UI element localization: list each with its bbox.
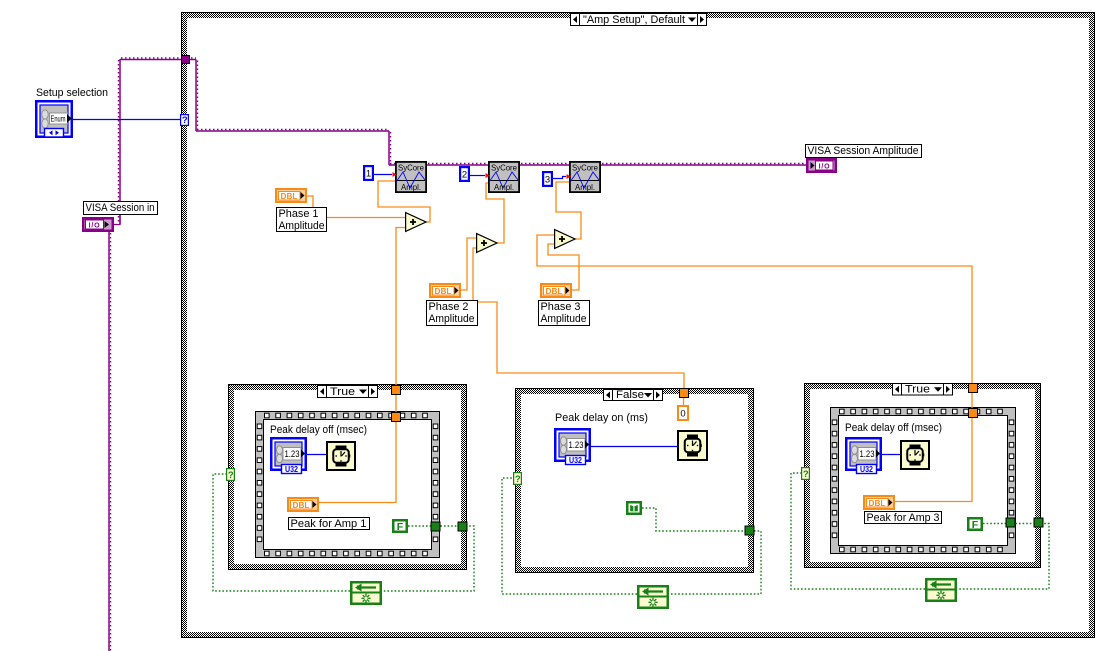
svg-text:Peak delay off (msec): Peak delay off (msec): [845, 422, 942, 434]
svg-text:U32: U32: [569, 456, 582, 465]
svg-text:2: 2: [462, 170, 467, 181]
svg-text:1.23: 1.23: [860, 449, 875, 460]
svg-text:?: ?: [228, 470, 234, 481]
svg-text:"Amp Setup", Default: "Amp Setup", Default: [583, 14, 685, 26]
svg-text:1.23: 1.23: [285, 449, 300, 460]
svg-text:I/O: I/O: [89, 222, 101, 229]
svg-text:Peak for Amp 3: Peak for Amp 3: [867, 512, 940, 524]
svg-text:SyCore: SyCore: [491, 164, 518, 173]
svg-text:Phase 3: Phase 3: [541, 301, 581, 313]
svg-text:True: True: [330, 386, 355, 398]
svg-text:Peak for Amp 1: Peak for Amp 1: [291, 518, 367, 530]
svg-text:VISA Session Amplitude: VISA Session Amplitude: [808, 145, 919, 157]
svg-text:SyCore: SyCore: [398, 164, 425, 173]
svg-text:Ampl.: Ampl.: [494, 183, 514, 192]
svg-text:Phase 2: Phase 2: [429, 301, 469, 313]
svg-text:Ampl.: Ampl.: [575, 183, 595, 192]
svg-text:Amplitude: Amplitude: [429, 313, 475, 325]
svg-text:DBL: DBL: [281, 191, 298, 201]
svg-text:?: ?: [803, 469, 809, 480]
svg-text:1.23: 1.23: [569, 440, 584, 451]
svg-text:Enum: Enum: [51, 115, 66, 124]
svg-text:Phase 1: Phase 1: [279, 208, 319, 220]
svg-text:Ampl.: Ampl.: [401, 183, 421, 192]
svg-text:Amplitude: Amplitude: [279, 220, 325, 232]
svg-text:T: T: [632, 504, 637, 513]
svg-text:1: 1: [366, 169, 371, 180]
svg-text:False: False: [616, 389, 644, 401]
svg-text:?: ?: [515, 474, 521, 485]
svg-text:0: 0: [680, 409, 685, 420]
svg-text:F: F: [397, 521, 404, 533]
svg-text:True: True: [905, 384, 930, 396]
svg-text:Setup selection: Setup selection: [36, 87, 108, 99]
svg-text:U32: U32: [860, 465, 873, 474]
svg-text:3: 3: [545, 175, 550, 186]
svg-text:DBL: DBL: [546, 286, 563, 296]
svg-text:?: ?: [182, 115, 188, 126]
svg-text:F: F: [972, 519, 979, 531]
svg-text:VISA Session in: VISA Session in: [86, 202, 155, 214]
svg-text:Amplitude: Amplitude: [541, 313, 587, 325]
svg-text:DBL: DBL: [293, 500, 310, 510]
svg-text:SyCore: SyCore: [572, 164, 599, 173]
svg-text:DBL: DBL: [435, 286, 452, 296]
svg-text:Peak delay on (ms): Peak delay on (ms): [555, 412, 648, 424]
svg-text:I/O: I/O: [819, 163, 831, 170]
svg-text:U32: U32: [285, 465, 298, 474]
svg-text:Peak delay off (msec): Peak delay off (msec): [270, 424, 367, 436]
svg-text:DBL: DBL: [869, 498, 886, 508]
